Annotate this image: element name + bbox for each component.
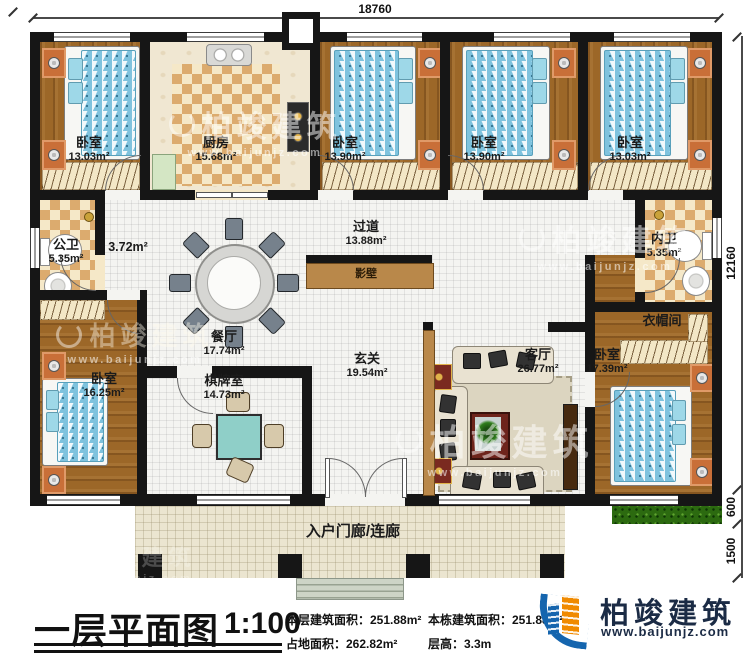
mahjong-table	[216, 414, 262, 460]
interior-wall	[585, 302, 722, 312]
stat-storey-height: 层高：3.3m	[428, 635, 491, 652]
nightstand	[42, 352, 66, 380]
door-opening	[588, 190, 623, 200]
door-opening	[448, 190, 483, 200]
toilet	[702, 232, 712, 260]
tv-cabinet	[563, 404, 578, 490]
dining-chair	[225, 218, 243, 240]
window	[195, 495, 292, 505]
porch-pillar	[406, 554, 430, 578]
dimension-tick	[8, 7, 18, 17]
tv-wall	[423, 330, 435, 496]
chimney	[282, 12, 320, 50]
porch-pillar	[540, 554, 564, 578]
plant	[476, 420, 500, 444]
room-label-public-bathroom: 公卫5.35m²	[49, 238, 84, 265]
kitchen-door-leaf	[196, 192, 232, 198]
logo-tower-orange	[562, 595, 579, 635]
room-label-kitchen: 厨房15.68m²	[196, 136, 237, 163]
company-logo: 柏竣建筑 www.baijunjz.com	[536, 588, 748, 650]
floor-plan-canvas: 18760 12160 600 1500	[0, 0, 750, 656]
dining-chair	[277, 274, 299, 292]
sofa-cushion	[440, 419, 456, 437]
window	[712, 216, 722, 260]
kitchen-door-leaf	[232, 192, 268, 198]
nightstand	[688, 140, 712, 170]
top-dimension-line	[33, 17, 719, 19]
top-dimension-label: 18760	[340, 2, 410, 16]
window	[437, 495, 532, 505]
window	[30, 226, 40, 270]
right-dimension-grass: 600	[724, 482, 738, 532]
refrigerator	[152, 154, 176, 190]
title-underline	[34, 650, 282, 653]
room-label-side-hall: 3.72m²	[108, 240, 148, 254]
nightstand	[552, 140, 576, 170]
window	[608, 495, 680, 505]
sofa-cushion	[439, 394, 457, 414]
stat-floor-area: 本层建筑面积：251.88m²	[286, 611, 421, 628]
room-label-bedroom-bottom-left: 卧室16.25m²	[84, 372, 125, 399]
sofa-cushion	[516, 471, 537, 490]
grass-strip	[612, 506, 722, 524]
sofa-cushion	[463, 353, 481, 369]
window	[185, 32, 266, 42]
room-label-screen-wall: 影壁	[355, 268, 377, 280]
outer-wall-right	[712, 32, 722, 506]
pillow	[46, 390, 59, 410]
room-label-entry-porch: 入户门廊/连廊	[306, 524, 400, 541]
nightstand	[42, 140, 66, 170]
screen-wall-cap	[306, 255, 432, 263]
porch-pillar	[138, 554, 162, 578]
nightstand	[690, 364, 714, 392]
room-label-bedroom-bottom-right: 卧室17.39m²	[587, 348, 628, 375]
pillow	[68, 82, 83, 104]
interior-wall	[302, 366, 312, 494]
door-opening	[107, 290, 140, 300]
window	[45, 495, 122, 505]
pillow	[670, 58, 685, 80]
door-opening	[318, 190, 353, 200]
window	[612, 32, 692, 42]
door-opening	[635, 258, 645, 292]
logo-website: www.baijunjz.com	[601, 624, 729, 639]
room-label-bedroom-top-3: 卧室13.90m²	[464, 136, 505, 163]
pillow	[672, 400, 686, 421]
dining-chair	[169, 274, 191, 292]
window	[52, 32, 132, 42]
nightstand	[418, 48, 442, 78]
nightstand	[418, 140, 442, 170]
sofa-cushion	[462, 472, 483, 491]
window	[345, 32, 424, 42]
title-underline	[34, 643, 282, 646]
pillow	[398, 58, 413, 80]
interior-wall	[578, 32, 588, 200]
room-label-bedroom-top-right: 卧室13.03m²	[610, 136, 651, 163]
sofa-cushion	[493, 472, 511, 488]
room-label-cloakroom: 衣帽间	[642, 314, 681, 329]
right-dimension-porch: 1500	[724, 526, 738, 576]
room-label-corridor: 过道13.88m²	[346, 220, 387, 247]
chess-chair	[264, 424, 284, 448]
right-dimension-main: 12160	[724, 228, 738, 298]
room-label-bedroom-top-2: 卧室13.90m²	[325, 136, 366, 163]
pillow	[46, 412, 59, 432]
logo-tower-blue	[548, 603, 559, 634]
pillow	[672, 424, 686, 445]
floor-drain-icon	[654, 210, 664, 220]
room-label-foyer: 玄关19.54m²	[347, 352, 388, 379]
door-opening	[95, 255, 105, 290]
watermark-logo-icon	[54, 543, 80, 569]
room-label-dining: 餐厅17.74m²	[204, 330, 245, 357]
porch-floor	[135, 506, 565, 578]
door-opening	[585, 372, 595, 407]
plan-title: 一层平面图	[34, 602, 219, 654]
window	[492, 32, 572, 42]
room-label-inner-bathroom: 内卫5.35m²	[647, 232, 682, 259]
stat-footprint-area: 占地面积：262.82m²	[286, 635, 397, 652]
logo-mark-icon	[536, 590, 592, 646]
nightstand	[688, 48, 712, 78]
closet-hatch	[40, 300, 105, 320]
pillow	[68, 58, 83, 80]
kitchen-sink	[206, 44, 252, 66]
porch-pillar	[278, 554, 302, 578]
room-label-chess-room: 棋牌室14.73m²	[204, 374, 245, 401]
tv-wall-cap	[423, 322, 433, 330]
floor-drain-icon	[84, 212, 94, 222]
closet-hatch	[620, 340, 708, 364]
closet-hatch	[688, 314, 708, 342]
dining-table-top	[207, 256, 261, 310]
pillow	[398, 82, 413, 104]
chess-chair	[192, 424, 212, 448]
door-opening	[105, 190, 140, 200]
room-label-living-room: 客厅26.77m²	[518, 348, 559, 375]
pillow	[532, 58, 547, 80]
sink	[682, 266, 710, 296]
pillow	[532, 82, 547, 104]
right-dimension-line	[741, 36, 743, 578]
nightstand	[42, 466, 66, 494]
pillow	[670, 82, 685, 104]
kitchen-tile-rug	[172, 64, 280, 186]
interior-wall	[140, 32, 150, 200]
nightstand	[42, 48, 66, 78]
nightstand	[552, 48, 576, 78]
cloakroom-floor	[595, 255, 635, 302]
room-label-bedroom-top-left: 卧室13.03m²	[69, 136, 110, 163]
porch-steps	[296, 578, 404, 600]
sofa-cushion	[488, 350, 509, 369]
stove	[287, 102, 309, 152]
nightstand	[690, 458, 714, 486]
mattress	[614, 390, 676, 482]
